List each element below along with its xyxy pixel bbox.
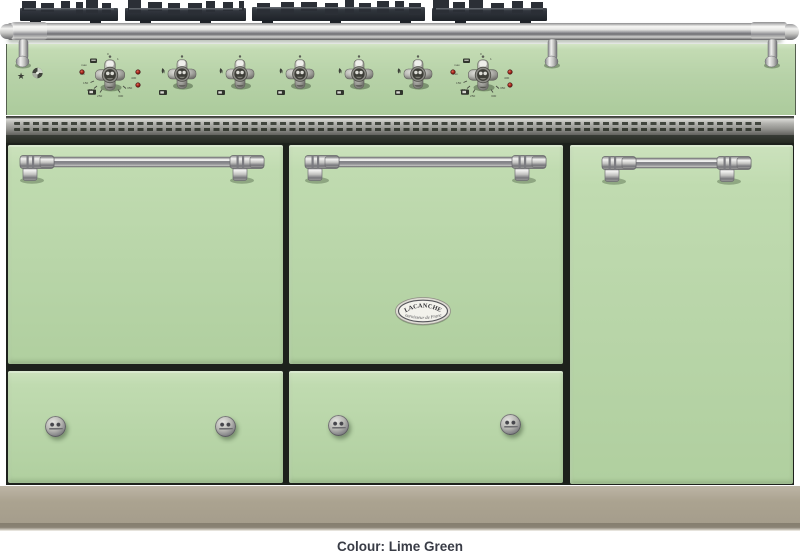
svg-text:★: ★ [17,71,25,81]
